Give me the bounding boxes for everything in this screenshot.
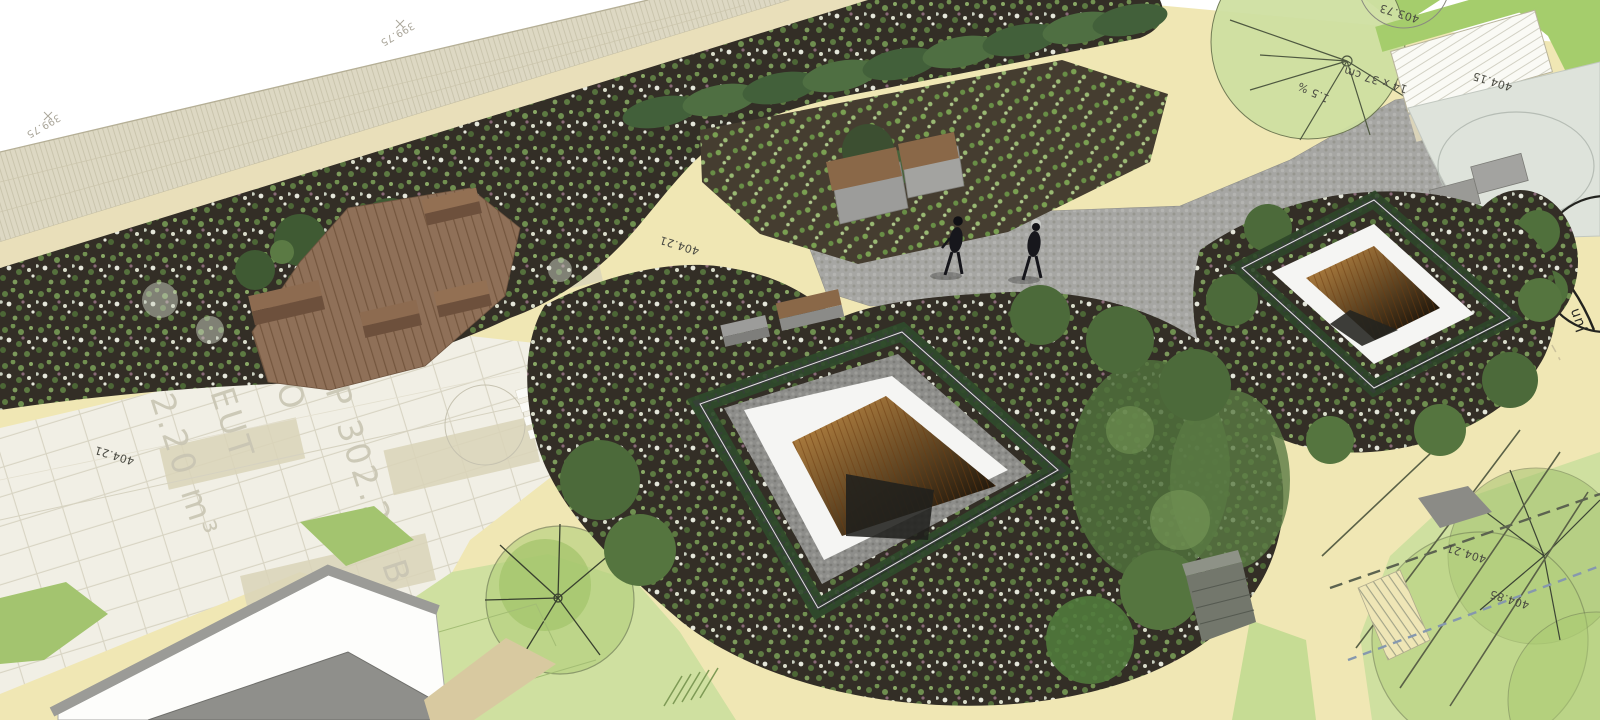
head <box>953 216 963 226</box>
plan-canvas: 399.75 399.75 2.20 m³ EUT CO PP 302.21 B… <box>0 0 1600 720</box>
plan-tree-inner <box>499 539 591 631</box>
site-plan-rendering: 399.75 399.75 2.20 m³ EUT CO PP 302.21 B… <box>0 0 1600 720</box>
head <box>1032 223 1040 231</box>
